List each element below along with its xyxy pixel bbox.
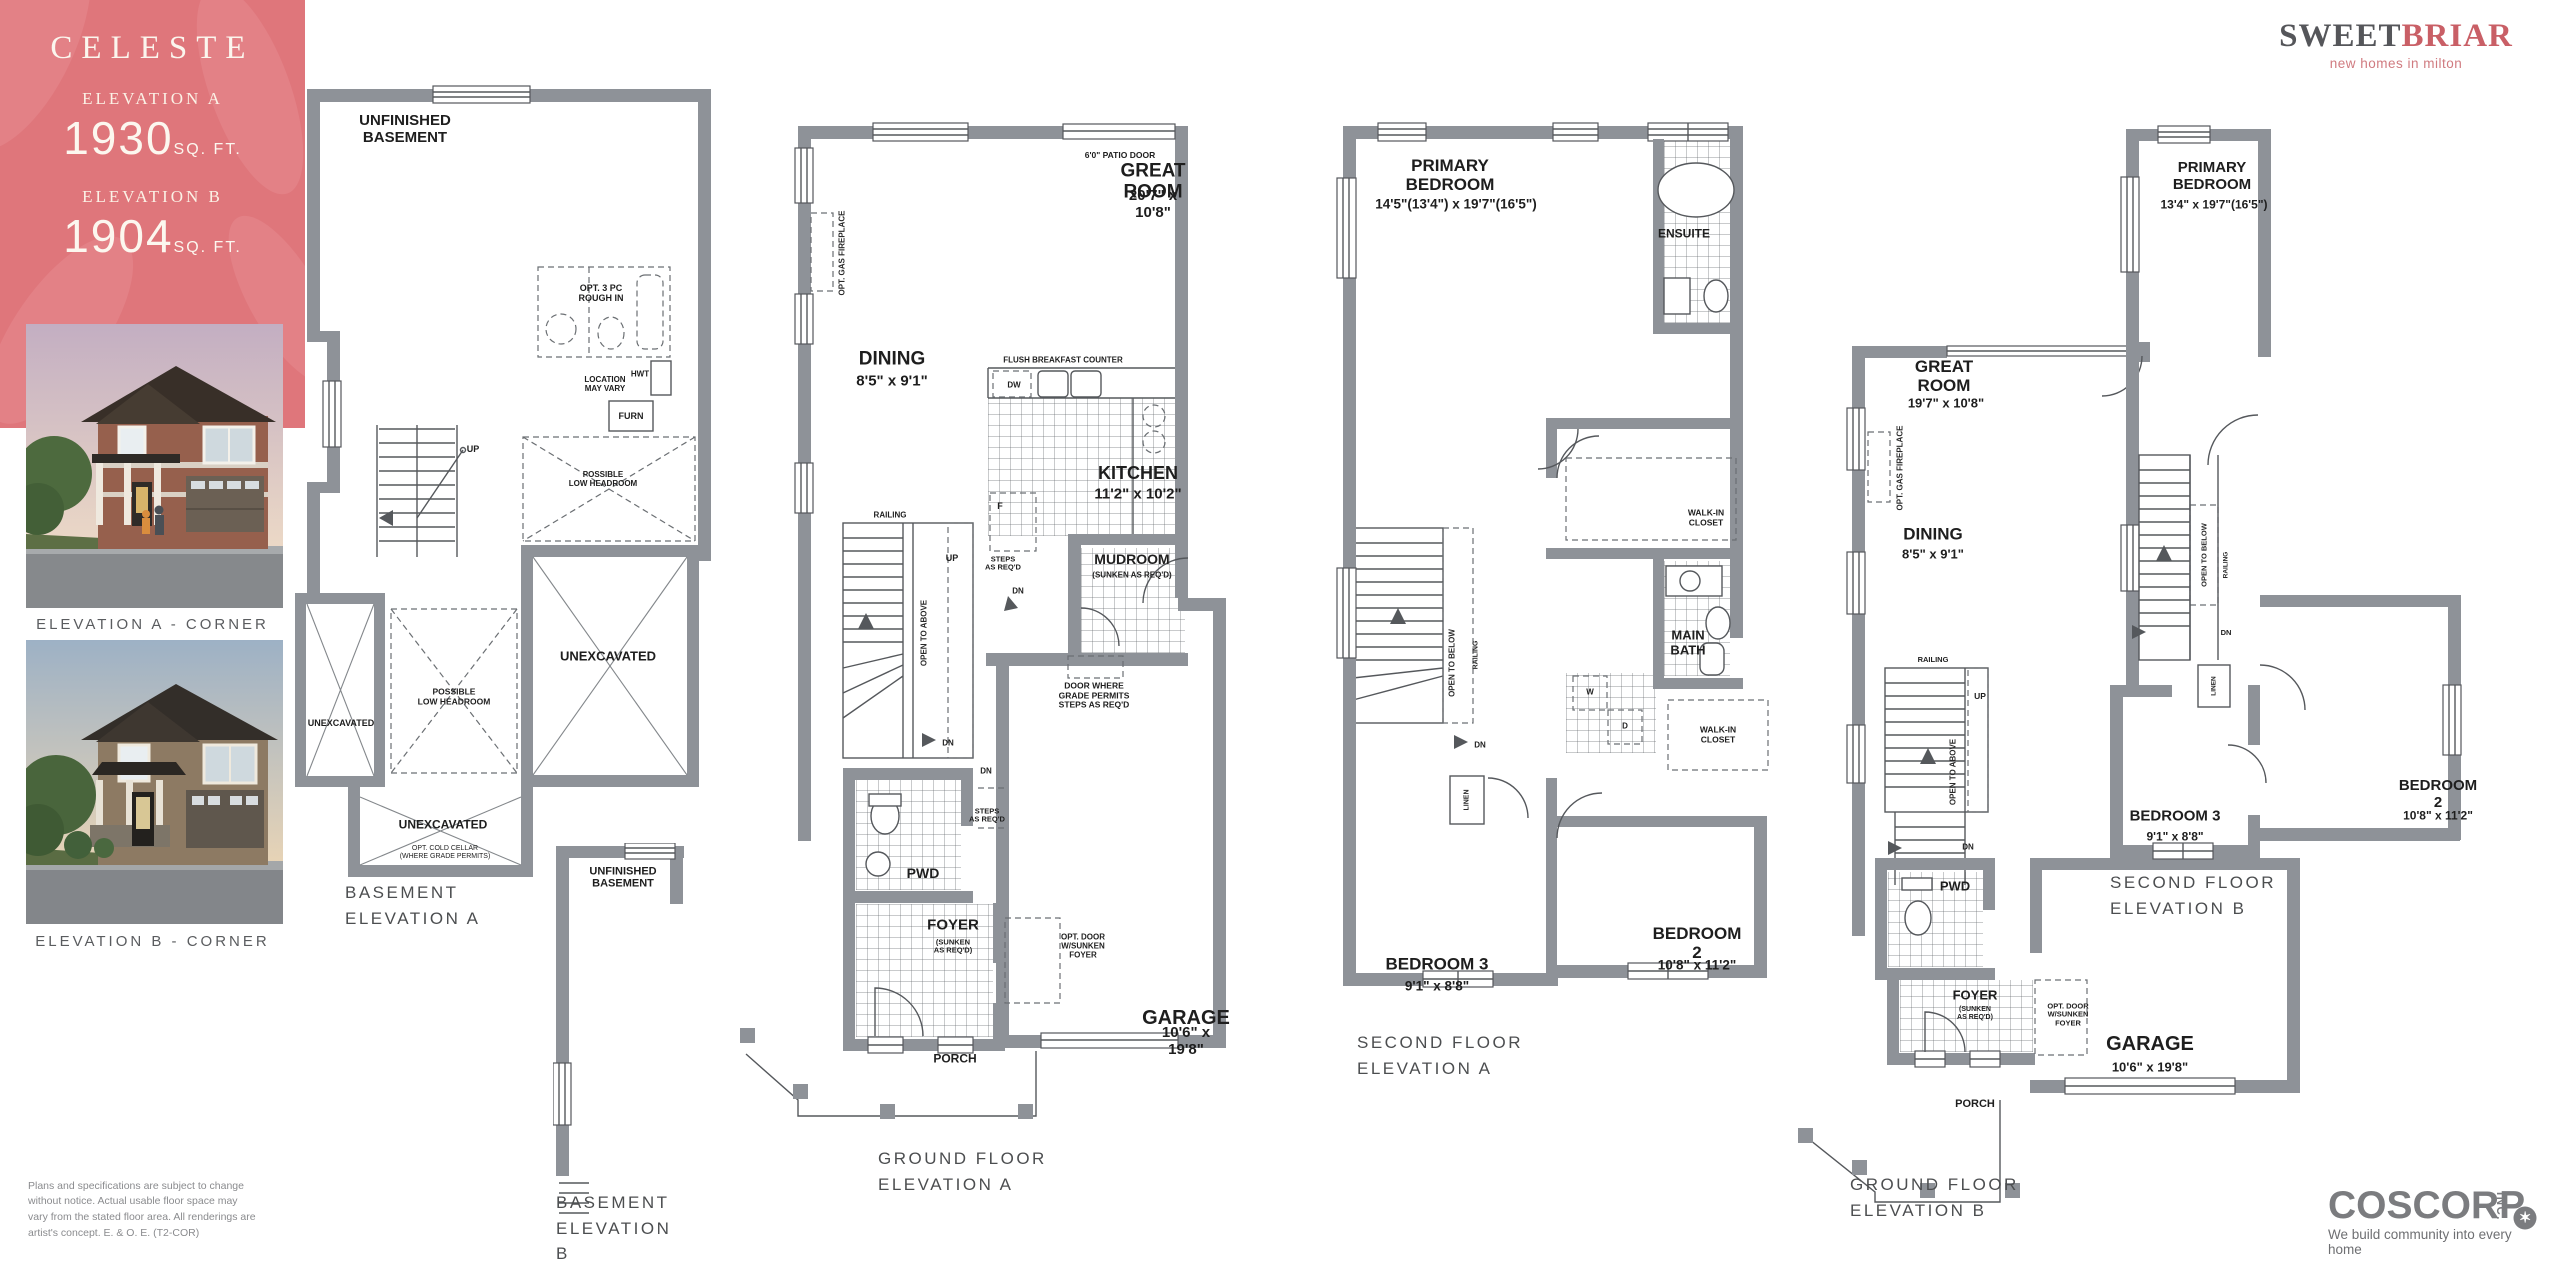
sweetbriar-logo: SWEETBRIAR new homes in milton xyxy=(2268,18,2524,71)
legal-disclaimer: Plans and specifications are subject to … xyxy=(28,1179,260,1242)
ground-a-porch-label: PORCH xyxy=(933,1052,976,1065)
ground-a-patio-door-label: 6'0" PATIO DOOR xyxy=(1085,151,1155,161)
basement-a-drawing xyxy=(293,85,725,915)
basement-a-unexcavated-left-label: UNEXCAVATED xyxy=(308,718,375,728)
coscorp-inc-suffix: INC. xyxy=(2494,1192,2506,1221)
ground-a-pwd-label: PWD xyxy=(907,866,940,882)
second-b-bedroom2-label: BEDROOM 2 xyxy=(2399,778,2477,812)
second-b-bedroom2-dim: 10'8" x 11'2" xyxy=(2403,809,2473,822)
second-b-linen-label: LINEN xyxy=(2211,676,2218,696)
basement-a-cold-cellar-label: OPT. COLD CELLAR (WHERE GRADE PERMITS) xyxy=(400,845,491,861)
ground-b-fireplace-label: OPT. GAS FIREPLACE xyxy=(1896,426,1905,511)
ground-a-mudroom-sub-label: (SUNKEN AS REQ'D) xyxy=(1092,572,1171,581)
ground-a-steps1-label: STEPS AS REQ'D xyxy=(985,556,1021,573)
ground-b-dining-dim: 8'5" x 9'1" xyxy=(1902,548,1964,563)
coscorp-wordmark: COSCORP✶ xyxy=(2328,1186,2543,1225)
elevation-b-sqft-number: 1904 xyxy=(63,210,173,262)
second-b-dn-label: DN xyxy=(2221,629,2232,637)
ground-b-dn-label: DN xyxy=(1962,844,1974,853)
second-b-primary-dim: 13'4" x 19'7"(16'5") xyxy=(2160,198,2267,211)
elevation-b-render xyxy=(26,640,283,924)
basement-a-caption: BASEMENT ELEVATION A xyxy=(345,880,481,931)
second-a-dryer-label: D xyxy=(1622,723,1628,732)
basement-a-unexcavated-bottom-label: UNEXCAVATED xyxy=(399,818,488,831)
ground-a-dw-label: DW xyxy=(1007,382,1020,391)
ground-b-caption: GROUND FLOOR ELEVATION B xyxy=(1850,1172,2019,1223)
ground-b-great-room-label: GREAT ROOM xyxy=(1915,357,1973,395)
ground-a-caption: GROUND FLOOR ELEVATION A xyxy=(878,1146,1047,1197)
ground-a-open-to-above-label: OPEN TO ABOVE xyxy=(920,600,929,666)
elevation-b-label: ELEVATION B xyxy=(0,187,305,207)
second-a-washer-label: W xyxy=(1586,689,1594,698)
ground-b-railing-label: RAILING xyxy=(1918,656,1949,664)
ground-b-pwd-label: PWD xyxy=(1940,880,1970,895)
second-a-railing-label: RAILING xyxy=(1473,641,1480,670)
ground-b-dining-label: DINING xyxy=(1903,524,1963,543)
elevation-b-render-caption: ELEVATION B - CORNER xyxy=(0,933,305,950)
ground-b-open-to-above-label: OPEN TO ABOVE xyxy=(1949,739,1958,805)
ground-b-up-label: UP xyxy=(1974,692,1986,702)
second-a-main-bath-label: MAIN BATH xyxy=(1670,628,1705,657)
plan-ground-floor-elevation-a: 6'0" PATIO DOOR GREAT ROOM 20'7" x 10'8"… xyxy=(738,68,1238,1198)
ground-a-door-grade-label: DOOR WHERE GRADE PERMITS STEPS AS REQ'D xyxy=(1059,682,1130,711)
second-b-open-below-label: OPEN TO BELOW xyxy=(2200,523,2209,587)
second-a-bedroom3-label: BEDROOM 3 xyxy=(1386,954,1489,973)
elevation-b-sqft: 1904SQ. FT. xyxy=(0,209,305,263)
plan-basement-elevation-a: UNFINISHED BASEMENT OPT. 3 PC ROUGH IN L… xyxy=(293,85,725,915)
ground-a-fridge-label: F xyxy=(997,501,1003,511)
ground-a-foyer-label: FOYER xyxy=(927,918,979,935)
plan-second-floor-elevation-b: PRIMARY BEDROOM 13'4" x 19'7"(16'5") OPE… xyxy=(2098,125,2508,915)
brand-tagline: new homes in milton xyxy=(2268,56,2524,71)
brochure-page: CELESTE ELEVATION A 1930SQ. FT. ELEVATIO… xyxy=(0,0,2560,1280)
plan-basement-elevation-b: UNFINISHED BASEMENT BASEMENT ELEVATION B xyxy=(553,843,688,1223)
plan-second-floor-elevation-a: PRIMARY BEDROOM 14'5"(13'4") x 19'7"(16'… xyxy=(1328,78,1788,1078)
second-a-wic1-label: WALK-IN CLOSET xyxy=(1688,508,1724,527)
coscorp-logo: COSCORP✶ INC. We build community into ev… xyxy=(2328,1186,2543,1257)
brand-name-part1: SWEET xyxy=(2279,18,2401,54)
second-b-bedroom3-label: BEDROOM 3 xyxy=(2130,809,2221,826)
basement-a-hwt-label: HWT xyxy=(631,371,649,380)
second-a-ensuite-label: ENSUITE xyxy=(1658,227,1710,240)
basement-a-unfinished-label: UNFINISHED BASEMENT xyxy=(359,113,451,147)
ground-a-dining-label: DINING xyxy=(859,348,926,369)
ground-a-fireplace-label: OPT. GAS FIREPLACE xyxy=(838,211,847,296)
ground-a-breakfast-counter-label: FLUSH BREAKFAST COUNTER xyxy=(1003,357,1123,366)
basement-a-low-headroom-center-label: POSSIBLE LOW HEADROOM xyxy=(418,687,491,706)
ground-a-dn1-label: DN xyxy=(1012,588,1024,597)
ground-a-dn3-label: DN xyxy=(980,768,992,777)
basement-a-up-label: UP xyxy=(467,444,480,454)
ground-b-great-room-dim: 19'7" x 10'8" xyxy=(1908,397,1984,412)
ground-a-railing-label: RAILING xyxy=(874,512,907,521)
ground-a-dining-dim: 8'5" x 9'1" xyxy=(856,374,927,391)
second-b-primary-label: PRIMARY BEDROOM xyxy=(2173,160,2251,194)
second-a-primary-dim: 14'5"(13'4") x 19'7"(16'5") xyxy=(1375,196,1537,211)
elevation-a-sqft-number: 1930 xyxy=(63,112,173,164)
brand-name-part2: BRIAR xyxy=(2402,18,2513,54)
ground-a-up-label: UP xyxy=(946,553,959,563)
elevation-a-render xyxy=(26,324,283,608)
basement-a-unexcavated-right-label: UNEXCAVATED xyxy=(560,650,656,665)
basement-a-location-label: LOCATION MAY VARY xyxy=(584,376,625,394)
ground-a-opt-door-label: OPT. DOOR W/SUNKEN FOYER xyxy=(1061,934,1105,961)
ground-b-foyer-sub-label: (SUNKEN AS REQ'D) xyxy=(1957,1006,1993,1022)
basement-a-low-headroom-upper-label: POSSIBLE LOW HEADROOM xyxy=(569,471,637,489)
ground-a-dn2-label: DN xyxy=(942,740,954,749)
ground-a-great-room-dim: 20'7" x 10'8" xyxy=(1111,188,1196,222)
ground-b-garage-label: GARAGE xyxy=(2106,1033,2194,1055)
second-a-wic2-label: WALK-IN CLOSET xyxy=(1700,725,1736,744)
elevation-a-sqft: 1930SQ. FT. xyxy=(0,111,305,165)
ground-b-garage-dim: 10'6" x 19'8" xyxy=(2112,1061,2188,1076)
second-b-railing-label: RAILING xyxy=(2223,552,2230,579)
ground-b-foyer-label: FOYER xyxy=(1953,989,1998,1004)
basement-b-unfinished-label: UNFINISHED BASEMENT xyxy=(589,866,656,891)
second-b-bedroom3-dim: 9'1" x 8'8" xyxy=(2146,830,2203,843)
coscorp-tagline: We build community into every home xyxy=(2328,1227,2543,1257)
second-a-linen-label: LINEN xyxy=(1464,790,1471,811)
model-name: CELESTE xyxy=(0,30,305,67)
second-b-caption: SECOND FLOOR ELEVATION B xyxy=(2110,870,2276,921)
second-a-caption: SECOND FLOOR ELEVATION A xyxy=(1357,1030,1523,1081)
elevation-a-render-caption: ELEVATION A - CORNER xyxy=(0,616,305,633)
ground-a-garage-dim: 10'6" x 19'8" xyxy=(1160,1025,1212,1059)
basement-b-drawing xyxy=(553,843,688,1223)
ground-a-foyer-sub-label: (SUNKEN AS REQ'D) xyxy=(934,939,972,956)
basement-a-rough-in-label: OPT. 3 PC ROUGH IN xyxy=(579,283,624,303)
sqft-unit: SQ. FT. xyxy=(174,141,242,158)
second-a-open-below-label: OPEN TO BELOW xyxy=(1448,629,1457,697)
ground-a-steps2-label: STEPS AS REQ'D xyxy=(969,808,1005,825)
second-a-bedroom2-dim: 10'8" x 11'2" xyxy=(1658,957,1737,972)
basement-b-caption: BASEMENT ELEVATION B xyxy=(556,1190,688,1267)
elevation-a-label: ELEVATION A xyxy=(0,89,305,109)
ground-b-opt-door-label: OPT. DOOR W/SUNKEN FOYER xyxy=(2047,1002,2088,1027)
second-a-dn-label: DN xyxy=(1474,742,1486,751)
ground-a-kitchen-label: KITCHEN xyxy=(1098,463,1178,483)
ground-b-porch-label: PORCH xyxy=(1955,1098,1995,1110)
sqft-unit-b: SQ. FT. xyxy=(174,239,242,256)
ground-a-kitchen-dim: 11'2" x 10'2" xyxy=(1094,487,1181,504)
second-a-bedroom3-dim: 9'1" x 8'8" xyxy=(1405,978,1469,993)
second-a-bedroom2-label: BEDROOM 2 xyxy=(1652,924,1743,962)
basement-a-furn-label: FURN xyxy=(619,411,644,421)
ground-a-mudroom-label: MUDROOM xyxy=(1094,552,1169,568)
second-a-primary-label: PRIMARY BEDROOM xyxy=(1406,156,1495,194)
